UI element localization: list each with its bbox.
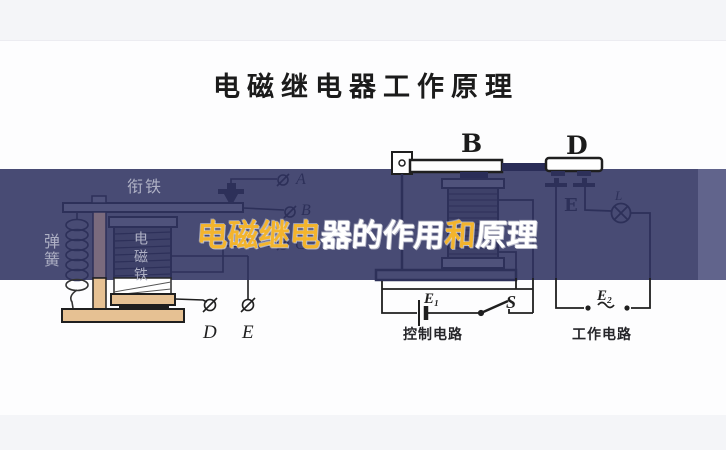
relay-base <box>62 309 184 322</box>
support-post-upper <box>93 212 106 278</box>
banner-title-char: 电 <box>288 210 322 255</box>
electromagnet-label: 电磁铁 <box>133 231 147 285</box>
banner-title-char: 原 <box>474 210 508 255</box>
banner-title-char: 的 <box>350 210 384 255</box>
work-circuit-label: 工作电路 <box>572 328 632 342</box>
post-tenon <box>92 196 106 203</box>
banner-title-char: 电 <box>195 210 229 255</box>
contact-e-label: E <box>564 197 578 215</box>
spring-lower-hook <box>66 280 88 309</box>
lamp-label: L <box>615 189 622 202</box>
banner-title-char: 磁 <box>226 210 260 255</box>
banner-title-char: 器 <box>319 210 353 255</box>
coil-top-flange <box>109 217 177 227</box>
switch-symbol <box>478 301 508 316</box>
bar-b-label: B <box>461 131 482 156</box>
bar-d-label: D <box>566 133 588 158</box>
banner-title-char: 和 <box>443 210 477 255</box>
battery-label: E₁ <box>424 292 439 307</box>
banner-title-char: 作 <box>381 210 415 255</box>
switch-label: S <box>506 293 516 311</box>
control-circuit-label: 控制电路 <box>403 328 463 342</box>
banner-title: 电磁继电器的作用和原理 <box>195 210 539 255</box>
banner-title-char: 用 <box>412 210 446 255</box>
lamp-symbol <box>612 204 631 223</box>
contact-points <box>545 178 595 187</box>
sch-coil-top-flange <box>442 179 504 188</box>
terminal-wires-de <box>175 280 255 312</box>
spring-label: 弹簧 <box>42 233 58 269</box>
spring <box>66 212 88 281</box>
lesson-image: 电磁继电器工作原理 衔铁 弹簧 电磁铁 A B C D E B D E L E₁… <box>0 0 726 450</box>
terminal-d-label: D <box>203 323 217 342</box>
bar-connector <box>502 163 546 171</box>
coil-bottom-flange <box>111 294 175 305</box>
source-label: E₂ <box>597 289 612 304</box>
terminal-a-label: A <box>296 172 306 188</box>
contact-pivot <box>218 183 244 203</box>
support-post-lower <box>93 278 106 311</box>
banner-title-char: 继 <box>257 210 291 255</box>
terminal-e-label: E <box>242 323 254 342</box>
armature-label: 衔铁 <box>127 179 163 195</box>
page-title: 电磁继电器工作原理 <box>196 74 536 101</box>
bar-b <box>410 160 502 172</box>
sch-coil-bottom-flange <box>442 258 504 268</box>
sch-base <box>376 270 516 280</box>
banner-title-char: 理 <box>505 210 539 255</box>
